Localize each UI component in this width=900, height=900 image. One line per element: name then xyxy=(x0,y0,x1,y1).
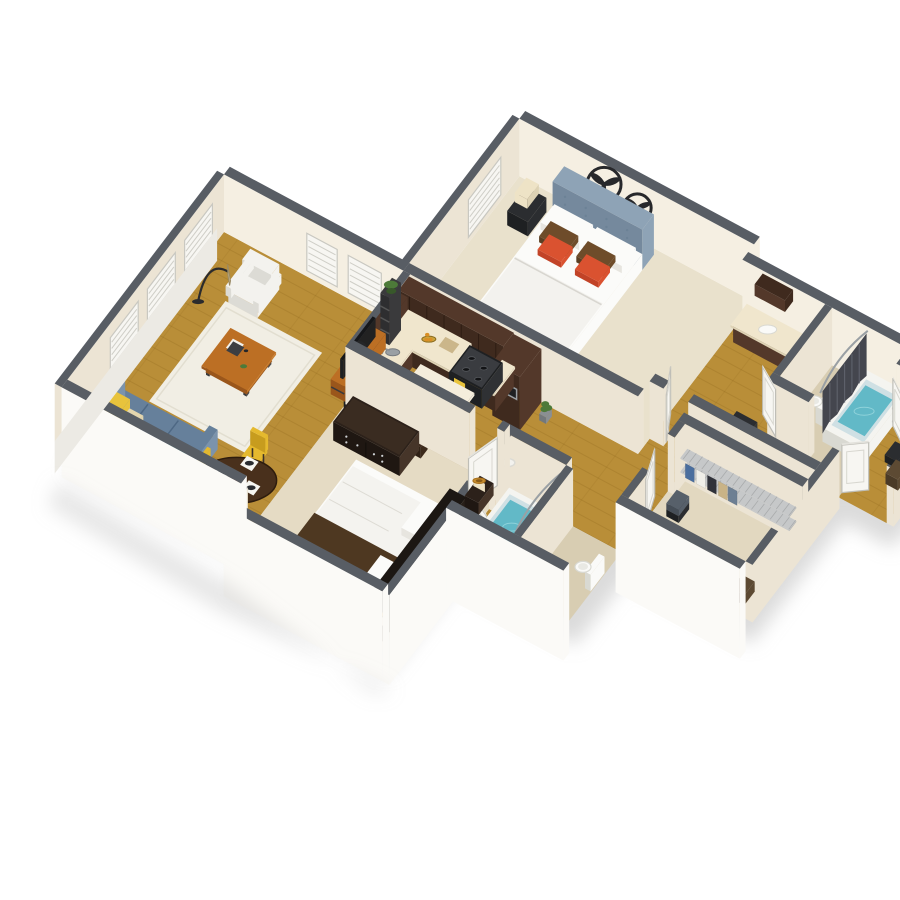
plant-leaves xyxy=(540,406,548,412)
drum-lamp-inner xyxy=(476,479,483,482)
dresser-knob xyxy=(345,441,347,443)
tuft-button xyxy=(564,196,566,198)
wall-closet-west-1-face-s xyxy=(668,434,675,495)
door-linen-2 xyxy=(842,443,869,493)
fan-hub xyxy=(601,182,606,187)
shelf-plant-2 xyxy=(386,288,396,294)
wall-closet-north-face-e xyxy=(802,479,808,544)
tuft-button xyxy=(564,204,566,206)
tuft-button xyxy=(585,207,587,209)
dresser-knob xyxy=(345,435,347,437)
dresser-knob xyxy=(373,453,375,455)
burner xyxy=(480,366,487,370)
wall-bed2-south-face-e xyxy=(382,584,388,682)
wall-bed2-north-2-face-s xyxy=(497,428,504,489)
floorplan-page xyxy=(0,0,900,900)
tuft-button xyxy=(605,226,607,228)
dresser-knob xyxy=(381,460,383,462)
arc-lamp-base xyxy=(192,299,204,304)
tuft-button xyxy=(605,218,607,220)
burner xyxy=(475,377,482,381)
vanity-sink xyxy=(759,325,777,334)
burner xyxy=(463,368,470,372)
table-plant xyxy=(240,364,247,368)
shelf-plant xyxy=(384,281,398,289)
wall-bath2-south-face-e xyxy=(563,563,569,661)
wall-closet-south-face-e xyxy=(740,561,746,659)
wall-toilet-south-face-e xyxy=(809,395,815,460)
fruit xyxy=(425,333,429,337)
wall-kitchen-north-face-e xyxy=(638,389,644,454)
plate xyxy=(245,461,254,466)
dresser-knob xyxy=(356,444,358,446)
wall-bed2-north-2-face-e xyxy=(504,424,510,489)
tuft-button xyxy=(585,215,587,217)
fruit xyxy=(424,338,428,342)
wall-bath-south-1-face-s xyxy=(650,381,664,446)
burner xyxy=(468,357,475,361)
fruit xyxy=(428,338,432,342)
tuft-button xyxy=(626,229,628,231)
table-decor xyxy=(244,349,248,352)
floorplan-render xyxy=(0,0,900,900)
dresser-knob xyxy=(381,455,383,457)
flat-tv-face-s xyxy=(340,359,343,379)
plate xyxy=(247,485,256,490)
toilet2-tank-face-s xyxy=(585,572,591,592)
tuft-button xyxy=(626,237,628,239)
wall-living-south-face-e xyxy=(241,476,247,574)
toilet2-seat xyxy=(578,563,588,570)
